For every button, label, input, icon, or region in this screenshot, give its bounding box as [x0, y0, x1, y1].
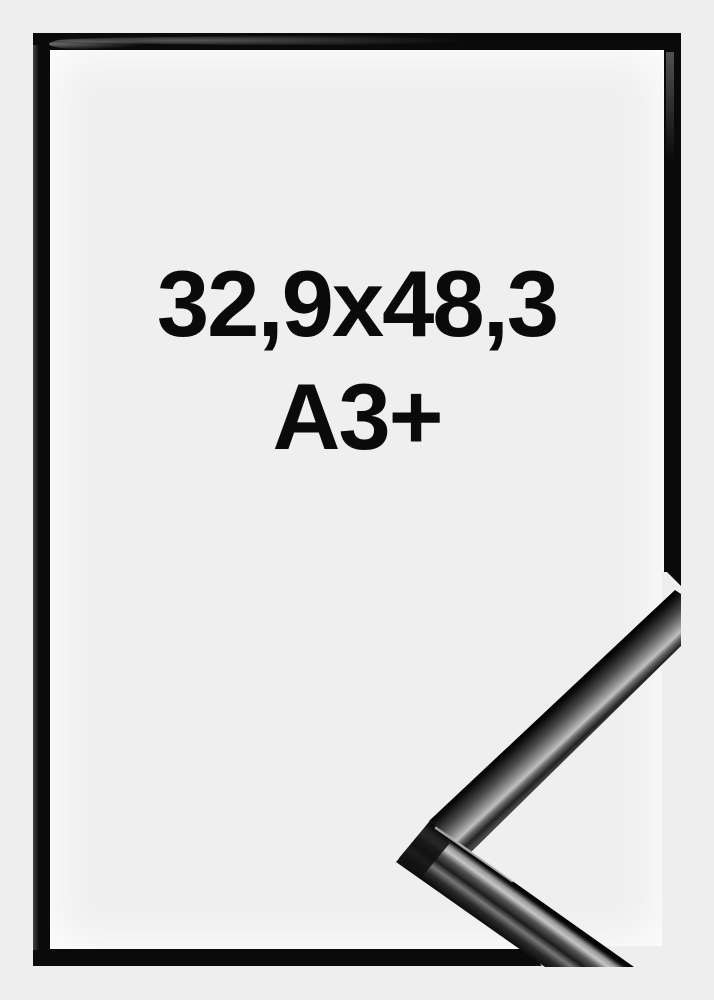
product-photo: 32,9x48,3 A3+ — [0, 0, 714, 1000]
detail-upper-arm — [429, 590, 681, 853]
frame-corner-detail-image — [0, 0, 714, 1000]
